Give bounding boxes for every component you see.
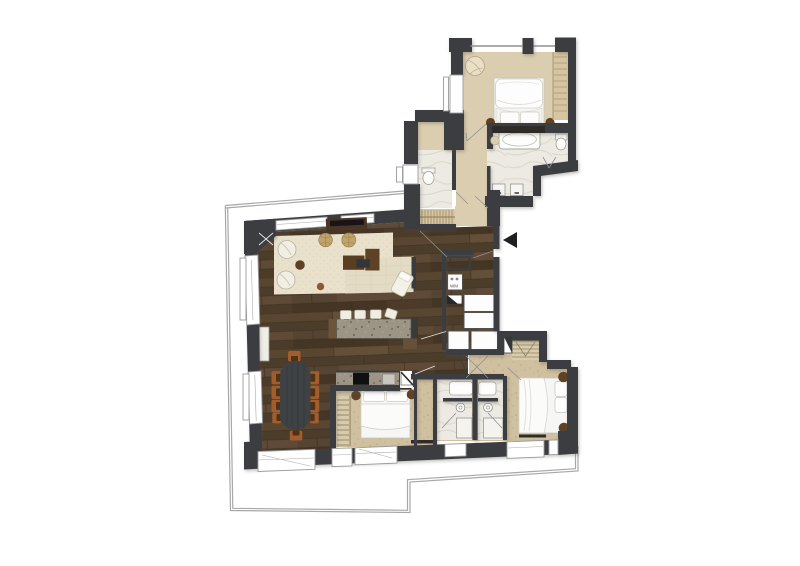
svg-text:WM: WM xyxy=(450,284,458,289)
